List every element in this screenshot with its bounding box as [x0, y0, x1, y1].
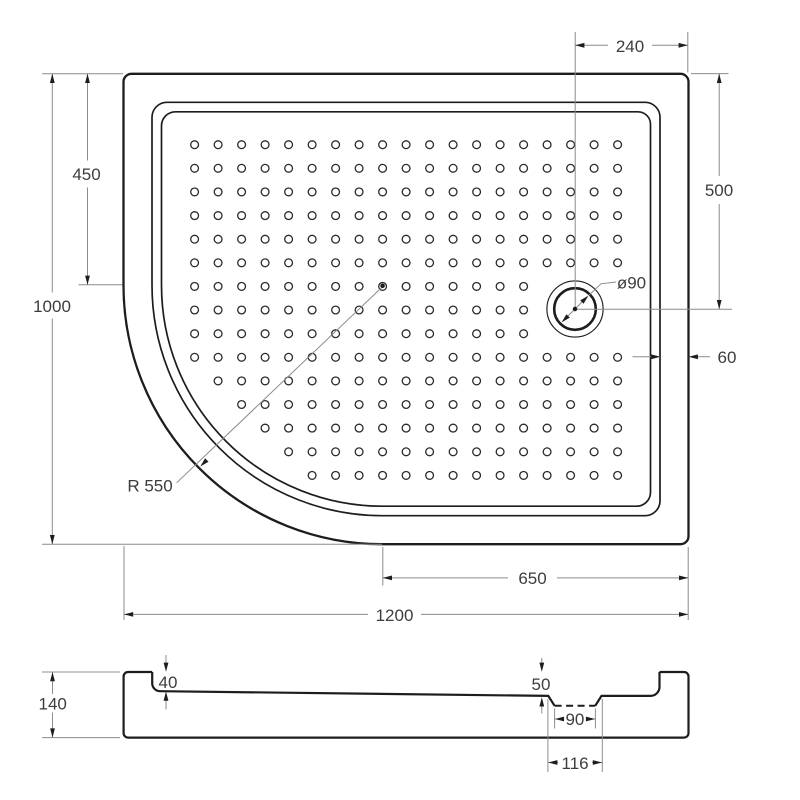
svg-text:90: 90 [565, 710, 584, 729]
svg-text:1000: 1000 [33, 297, 71, 316]
svg-text:R 550: R 550 [127, 477, 172, 496]
svg-text:650: 650 [518, 569, 546, 588]
svg-text:450: 450 [72, 165, 100, 184]
svg-text:116: 116 [562, 754, 589, 773]
svg-text:50: 50 [532, 675, 551, 694]
svg-text:1200: 1200 [376, 606, 414, 625]
svg-text:40: 40 [159, 673, 178, 692]
svg-text:60: 60 [718, 348, 737, 367]
svg-text:140: 140 [39, 695, 67, 714]
svg-text:ø90: ø90 [617, 274, 646, 293]
svg-text:240: 240 [616, 37, 644, 56]
svg-text:500: 500 [705, 181, 733, 200]
